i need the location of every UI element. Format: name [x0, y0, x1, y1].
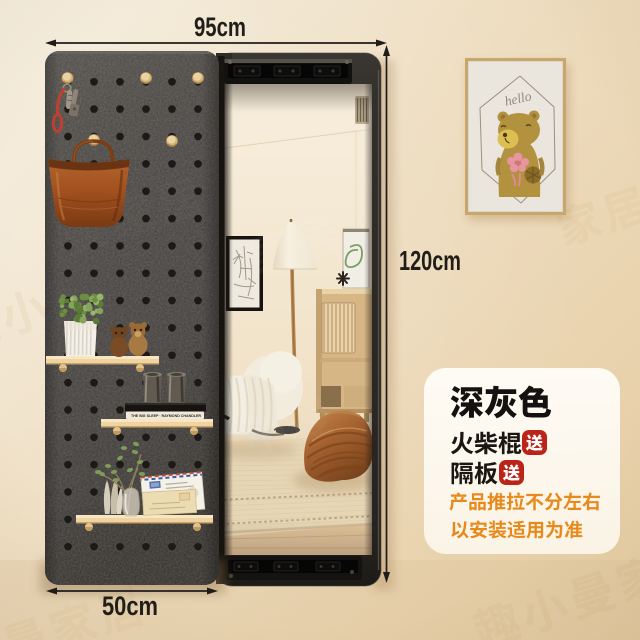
svg-text:120cm: 120cm [399, 245, 461, 276]
svg-text:50cm: 50cm [102, 591, 158, 621]
svg-text:95cm: 95cm [194, 12, 246, 42]
svg-text:THE BIG SLEEP · RAYMOND CHANDL: THE BIG SLEEP · RAYMOND CHANDLER [131, 413, 201, 418]
